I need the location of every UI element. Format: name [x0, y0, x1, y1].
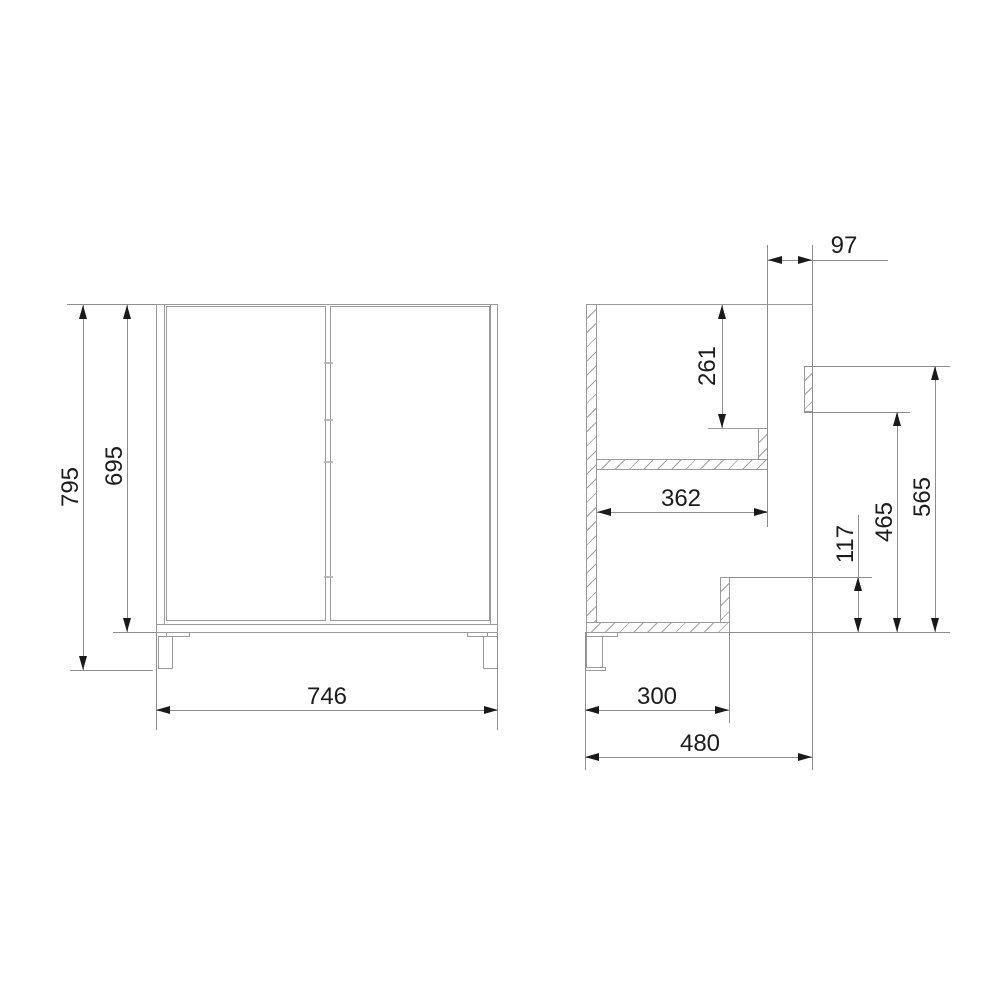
dim-line-overall-depth — [585, 757, 812, 758]
dim-line-back-clearance — [768, 260, 888, 261]
arrow-left-icon — [585, 706, 599, 714]
left-door — [166, 306, 326, 621]
hinge-tick — [328, 576, 333, 578]
arrow-right-icon — [754, 508, 768, 516]
extension-line — [585, 632, 586, 770]
extension-line — [156, 633, 157, 730]
hinge-tick — [328, 461, 333, 463]
dim-label-back-clearance: 97 — [831, 234, 858, 258]
arrow-right-icon — [715, 706, 729, 714]
side-foot-pad — [585, 667, 606, 671]
arrow-right-icon — [798, 753, 812, 761]
extension-line — [767, 245, 768, 527]
dim-label-back-cutout: 117 — [834, 525, 858, 563]
arrow-up-icon — [854, 577, 862, 591]
bottom-rail-line — [157, 624, 497, 625]
dim-label-overall-height: 795 — [59, 467, 83, 507]
arrow-down-icon — [893, 618, 901, 632]
arrow-up-icon — [893, 412, 901, 426]
extension-line — [113, 632, 157, 633]
arrow-up-icon — [123, 305, 131, 319]
arrow-up-icon — [79, 305, 87, 319]
lower-back-strip-section — [720, 577, 730, 623]
dim-label-rail-top-height: 565 — [911, 477, 935, 517]
shelf-section — [596, 459, 768, 470]
top-edge-line — [586, 304, 812, 305]
dim-label-top-to-shelf: 261 — [696, 346, 720, 386]
dim-line-lower-depth — [585, 710, 729, 711]
arrow-left-icon — [768, 256, 782, 264]
carcass-right-panel-line — [490, 304, 491, 624]
dim-label-overall-depth: 480 — [680, 732, 720, 756]
extension-line — [497, 633, 498, 730]
arrow-up-icon — [931, 366, 939, 380]
support-top-extension-line — [708, 428, 768, 429]
arrow-down-icon — [718, 414, 726, 428]
arrow-left-icon — [585, 753, 599, 761]
dim-line-width — [156, 710, 498, 711]
left-foot — [158, 636, 173, 669]
arrow-right-icon — [484, 706, 498, 714]
dim-label-width: 746 — [307, 685, 347, 709]
hinge-tick — [328, 419, 333, 421]
dim-line-shelf-depth — [597, 512, 768, 513]
arrow-left-icon — [156, 706, 170, 714]
extension-line — [70, 670, 153, 671]
arrow-down-icon — [123, 618, 131, 632]
arrow-down-icon — [79, 656, 87, 670]
dim-label-rail-bottom-height: 465 — [873, 502, 897, 542]
arrow-down-icon — [854, 618, 862, 632]
dim-label-carcass-height: 695 — [103, 446, 127, 486]
baseline-extension-line — [729, 632, 950, 633]
arrow-down-icon — [931, 618, 939, 632]
extension-line — [729, 577, 872, 578]
arrow-up-icon — [718, 305, 726, 319]
hinge-tick — [328, 362, 333, 364]
arrow-left-icon — [597, 508, 611, 516]
arrow-right-icon — [798, 256, 812, 264]
dim-label-shelf-depth: 362 — [661, 487, 701, 511]
dim-label-lower-depth: 300 — [637, 685, 677, 709]
back-edge-line — [812, 245, 813, 770]
extension-line — [729, 633, 730, 723]
technical-drawing-canvas: 795 695 746 — [0, 0, 1000, 1000]
extension-line — [804, 366, 950, 367]
right-foot — [483, 636, 498, 669]
right-door — [330, 306, 490, 621]
carcass-left-panel-line — [164, 304, 165, 624]
dim-line-top-to-shelf — [722, 305, 723, 428]
side-foot — [586, 636, 603, 668]
